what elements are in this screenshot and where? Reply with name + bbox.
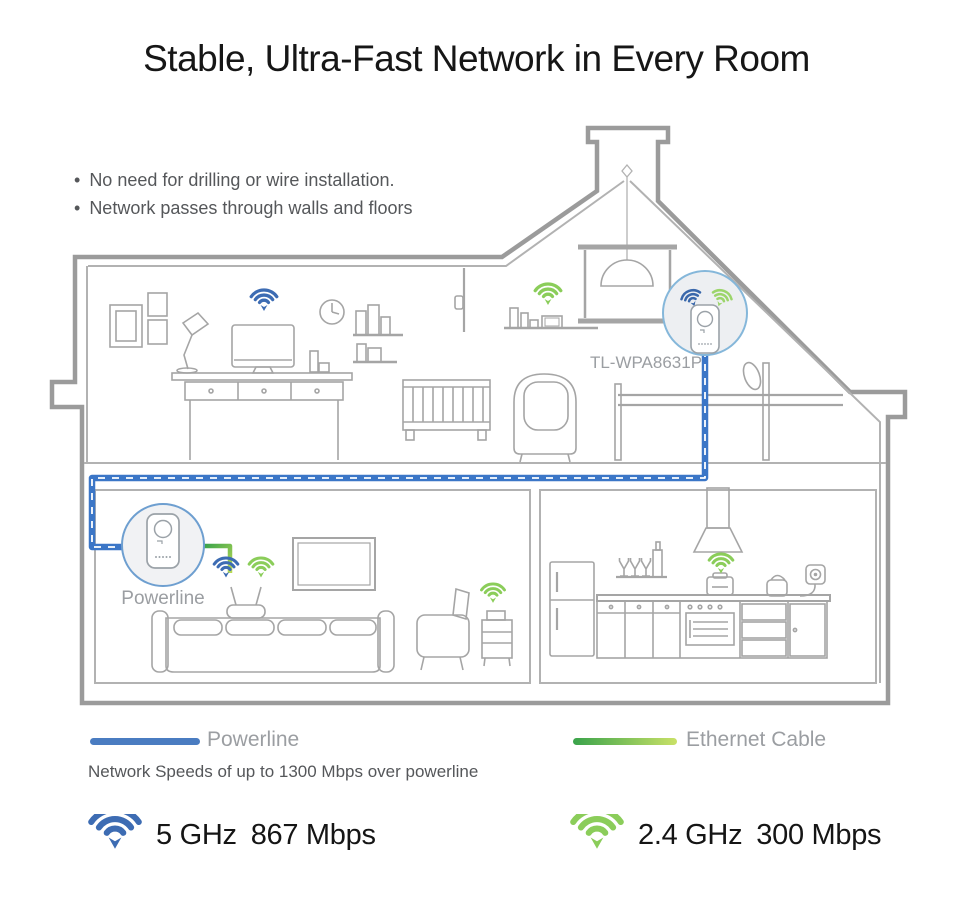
powerline-legend-label: Powerline — [207, 728, 299, 752]
band-label: 2.4 GHz — [638, 819, 742, 851]
speed-24ghz: 2.4 GHz300 Mbps — [568, 814, 881, 856]
speed-text: 5 GHz867 Mbps — [156, 819, 376, 852]
wifi-green-icon — [568, 814, 626, 856]
extender-device-badge — [663, 271, 747, 355]
powerline-device-label: Powerline — [121, 588, 204, 609]
page-title: Stable, Ultra-Fast Network in Every Room — [0, 38, 953, 80]
house-outline — [52, 128, 905, 703]
ethernet-legend-label: Ethernet Cable — [686, 728, 826, 752]
powerline-adapter — [147, 514, 179, 568]
speed-text: 2.4 GHz300 Mbps — [638, 819, 881, 852]
ethernet-legend-line — [573, 738, 677, 745]
powerline-speed-caption: Network Speeds of up to 1300 Mbps over p… — [88, 762, 478, 782]
powerline-device-badge — [122, 504, 204, 586]
rate-label: 300 Mbps — [756, 819, 881, 851]
wifi-blue-icon — [86, 814, 144, 856]
powerline-adapter — [691, 305, 719, 353]
extender-label: TL-WPA8631P — [590, 353, 702, 372]
band-label: 5 GHz — [156, 819, 237, 851]
house-diagram: TL-WPA8631P Powerline — [40, 110, 920, 722]
powerline-legend-line — [90, 738, 200, 745]
rate-label: 867 Mbps — [251, 819, 376, 851]
speed-5ghz: 5 GHz867 Mbps — [86, 814, 376, 856]
